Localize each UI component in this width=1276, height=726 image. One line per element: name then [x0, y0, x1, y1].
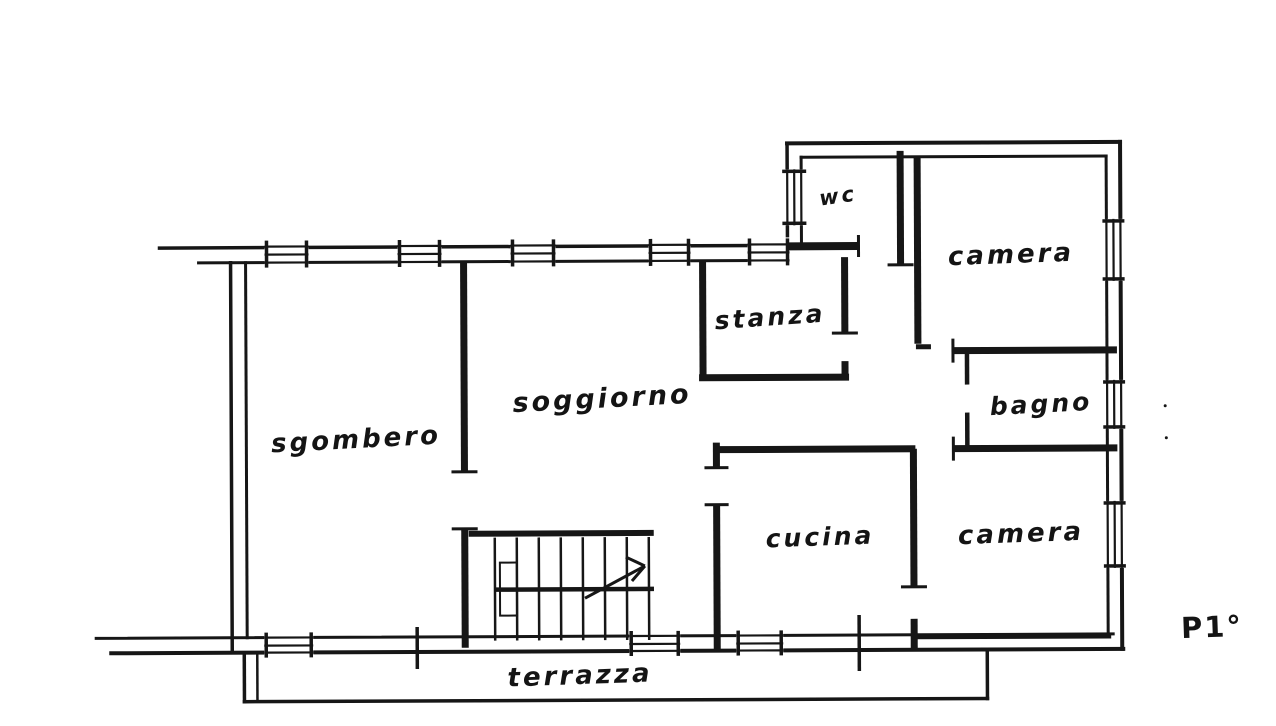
room-label-camera-sud: camera	[957, 517, 1084, 551]
room-label-terrazza: terrazza	[507, 658, 653, 693]
staircase	[469, 533, 654, 641]
scan-speckles	[1164, 404, 1168, 439]
window	[1102, 501, 1128, 568]
stair-mid-rail	[495, 589, 654, 590]
window	[648, 238, 690, 266]
floor-indicator: P1°	[1180, 609, 1243, 645]
window	[1100, 219, 1126, 281]
window	[510, 238, 555, 266]
door-openings	[415, 235, 968, 673]
window	[1101, 380, 1127, 429]
window	[747, 237, 789, 265]
window	[264, 631, 313, 658]
floor-plan-scan: sgomberosoggiornostanzawccamerabagnocuci…	[0, 0, 1276, 726]
window	[781, 169, 807, 225]
room-label-camera-nord: camera	[947, 238, 1074, 272]
stair-direction-arrow	[585, 557, 645, 598]
window	[629, 630, 680, 657]
window	[736, 629, 783, 656]
room-label-bagno: bagno	[989, 387, 1093, 421]
floor-plan-drawing	[0, 0, 1276, 726]
room-label-cucina: cucina	[765, 521, 875, 554]
window	[264, 239, 308, 267]
window	[397, 239, 441, 267]
